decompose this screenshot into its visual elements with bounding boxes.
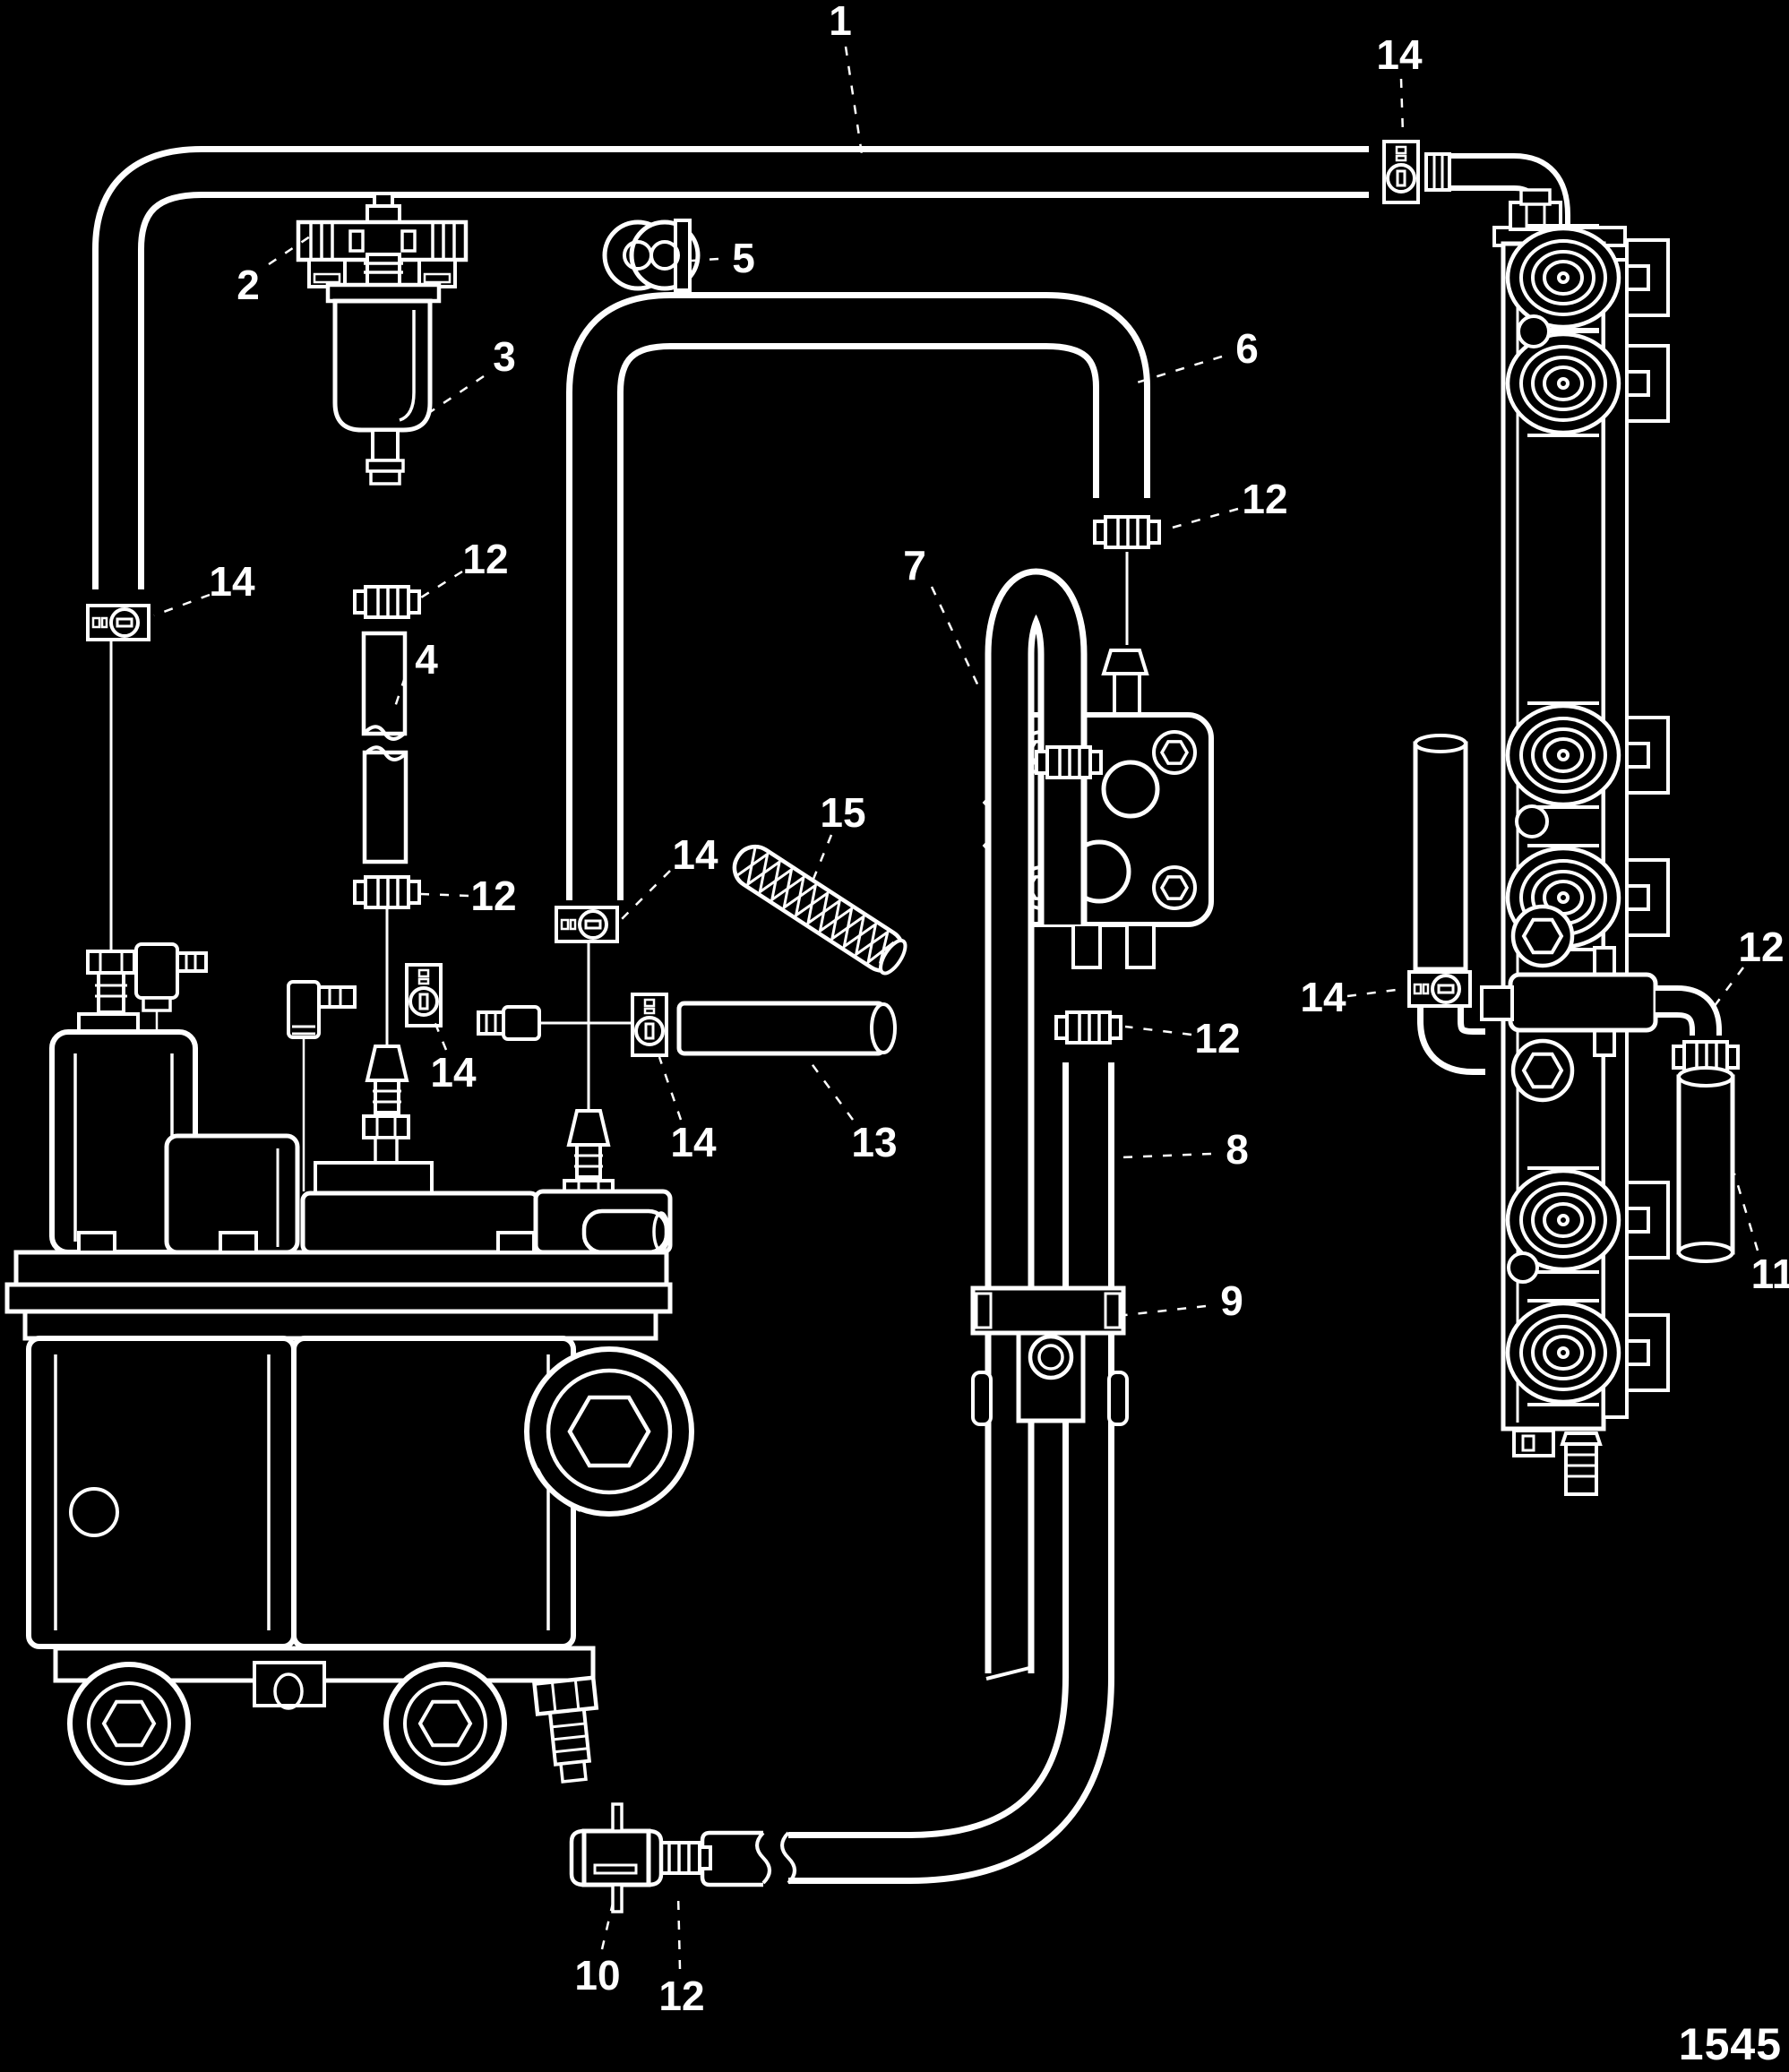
hose-stub-piece bbox=[702, 1833, 770, 1885]
fitting-12-hose7 bbox=[1036, 747, 1101, 778]
callout-leader-10-23 bbox=[602, 1896, 615, 1949]
fitting-12-hose4 bbox=[355, 877, 419, 907]
callout-leader-1-0 bbox=[846, 47, 862, 154]
fuel-hose-13 bbox=[679, 1003, 895, 1053]
mount-foot bbox=[386, 1664, 504, 1783]
injector-connector bbox=[1627, 860, 1668, 935]
fuel-system-exploded-diagram: 1142356127121441514121412141413128119101… bbox=[0, 0, 1789, 2072]
callout-leader-12-13 bbox=[421, 894, 469, 896]
braided-sleeve-15 bbox=[727, 839, 910, 979]
callout-leader-15-11 bbox=[812, 835, 831, 883]
callout-label-14-9: 14 bbox=[209, 558, 255, 605]
callout-leader-3-3 bbox=[427, 376, 484, 414]
callout-label-14-14: 14 bbox=[1300, 974, 1346, 1020]
callout-leader-12-8 bbox=[421, 572, 462, 598]
fuel-injector bbox=[1508, 1301, 1619, 1405]
callout-label-12-6: 12 bbox=[1242, 476, 1287, 522]
clamp-14-hose6 bbox=[556, 907, 617, 941]
callout-leader-14-14 bbox=[1347, 989, 1403, 996]
fuel-rail bbox=[1426, 154, 1706, 1494]
fuel-filter-3 bbox=[328, 254, 439, 484]
callout-label-14-16: 14 bbox=[430, 1049, 477, 1096]
fuel-hose-11 bbox=[1679, 1068, 1733, 1261]
callout-label-12-15: 12 bbox=[1194, 1015, 1240, 1062]
callout-label-14-17: 14 bbox=[670, 1119, 717, 1165]
cone-fitting bbox=[569, 1111, 608, 1177]
pump-bolt bbox=[1154, 867, 1195, 908]
callout-leader-14-9 bbox=[154, 595, 210, 615]
callout-leader-8-20 bbox=[1120, 1154, 1211, 1157]
callout-label-11-21: 11 bbox=[1751, 1251, 1789, 1297]
callout-leader-11-21 bbox=[1734, 1174, 1758, 1251]
clamp-14-vertical-b bbox=[632, 994, 667, 1055]
callout-label-12-13: 12 bbox=[470, 873, 516, 919]
callout-leader-14-12 bbox=[622, 871, 670, 919]
callout-leader-14-1 bbox=[1401, 79, 1403, 134]
clamp-14-top bbox=[1384, 142, 1418, 202]
injector-connector bbox=[1627, 718, 1668, 793]
callout-leader-13-18 bbox=[808, 1059, 853, 1120]
callout-label-15-11: 15 bbox=[820, 789, 865, 836]
callout-leader-14-17 bbox=[659, 1057, 681, 1120]
callout-label-12-8: 12 bbox=[462, 536, 508, 582]
hex-boss bbox=[527, 1349, 692, 1514]
callout-label-4-10: 4 bbox=[415, 636, 438, 683]
injector-connector bbox=[1627, 1315, 1668, 1390]
hex-bolt bbox=[1513, 1041, 1572, 1100]
fuel-hose-4 bbox=[364, 633, 406, 862]
pump-bolt bbox=[1154, 732, 1195, 773]
inlet-barb-fitting bbox=[88, 951, 134, 1012]
fitting-12-pump-top bbox=[1095, 517, 1159, 547]
callout-label-12-19: 12 bbox=[1738, 924, 1784, 970]
clamp-14-rail bbox=[1409, 972, 1470, 1006]
callout-label-1-0: 1 bbox=[829, 0, 852, 44]
callout-leader-12-24 bbox=[678, 1894, 680, 1969]
callout-label-5-4: 5 bbox=[732, 235, 755, 281]
callout-leader-12-19 bbox=[1711, 967, 1743, 1010]
drain-fitting bbox=[535, 1678, 604, 1784]
parts-diagram-page: 1142356127121441514121412141413128119101… bbox=[0, 0, 1789, 2072]
clamp-14-vertical-a bbox=[407, 965, 441, 1026]
mount-foot bbox=[70, 1664, 188, 1783]
clamp-14-left bbox=[88, 606, 149, 640]
callout-label-3-3: 3 bbox=[493, 333, 516, 380]
hex-bolt bbox=[1513, 907, 1572, 966]
fuel-injector bbox=[1508, 703, 1619, 807]
retainer-clamp-5 bbox=[605, 220, 698, 290]
callout-label-7-7: 7 bbox=[903, 542, 926, 589]
fuel-injector bbox=[1508, 226, 1619, 330]
callout-leader-7-7 bbox=[932, 587, 980, 690]
callout-leader-9-22 bbox=[1125, 1306, 1206, 1315]
callout-label-13-18: 13 bbox=[851, 1119, 897, 1165]
fitting-12-hose8 bbox=[1056, 1012, 1121, 1043]
callout-label-2-2: 2 bbox=[237, 262, 260, 308]
callout-label-10-23: 10 bbox=[574, 1952, 620, 1999]
callout-label-12-24: 12 bbox=[658, 1973, 704, 2019]
injector-connector bbox=[1627, 240, 1668, 315]
cone-fitting bbox=[367, 1046, 407, 1113]
elbow-barb-fitting-left bbox=[478, 1007, 539, 1039]
fuel-injector bbox=[1508, 331, 1619, 435]
callout-label-9-22: 9 bbox=[1220, 1277, 1243, 1324]
callout-leader-12-6 bbox=[1163, 509, 1238, 530]
callout-leader-12-15 bbox=[1125, 1027, 1191, 1035]
fuel-hose-8 bbox=[782, 1062, 1088, 1883]
callout-label-14-1: 14 bbox=[1376, 31, 1423, 78]
drawing-number: 1545 bbox=[1679, 2018, 1782, 2070]
fitting-12-filter bbox=[355, 587, 419, 617]
inline-fitting-10 bbox=[572, 1804, 661, 1912]
callout-label-6-5: 6 bbox=[1235, 325, 1259, 372]
callout-label-8-20: 8 bbox=[1226, 1126, 1249, 1173]
injector-connector bbox=[1627, 346, 1668, 421]
callout-label-14-12: 14 bbox=[672, 831, 718, 878]
injector-connector bbox=[1627, 1182, 1668, 1258]
rail-bottom-fittings bbox=[1514, 1431, 1600, 1494]
